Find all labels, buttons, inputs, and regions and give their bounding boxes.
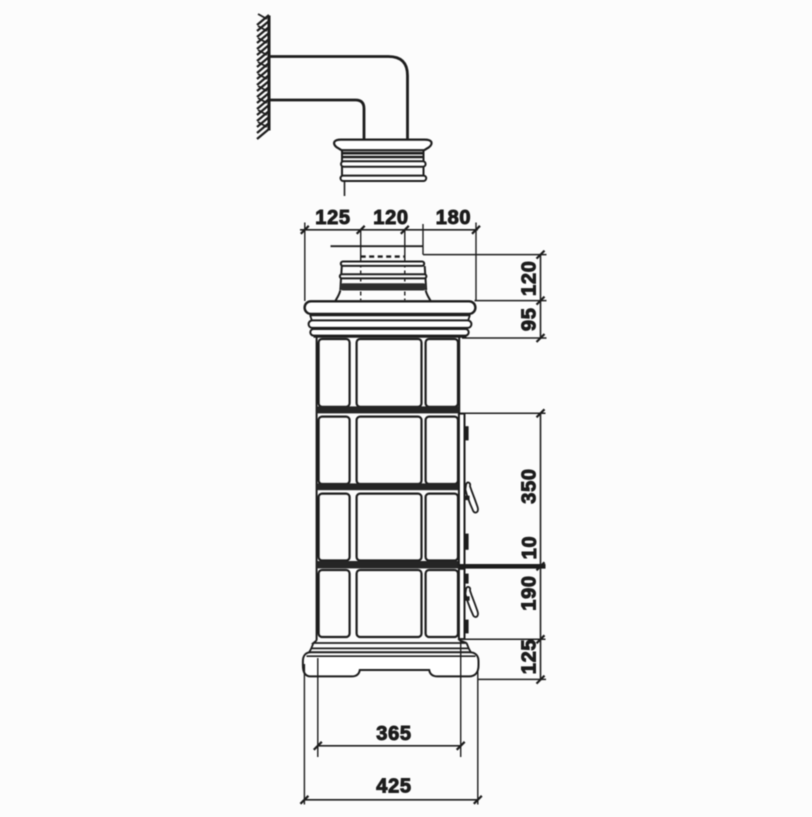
svg-text:95: 95 — [519, 307, 541, 331]
svg-text:125: 125 — [519, 639, 541, 674]
svg-text:120: 120 — [373, 207, 408, 229]
svg-text:190: 190 — [519, 575, 541, 610]
svg-text:180: 180 — [436, 207, 471, 229]
svg-text:350: 350 — [519, 468, 541, 503]
svg-text:365: 365 — [376, 723, 411, 745]
svg-text:425: 425 — [376, 776, 411, 798]
svg-text:120: 120 — [519, 260, 541, 295]
svg-text:10: 10 — [519, 536, 541, 560]
svg-text:125: 125 — [315, 207, 350, 229]
